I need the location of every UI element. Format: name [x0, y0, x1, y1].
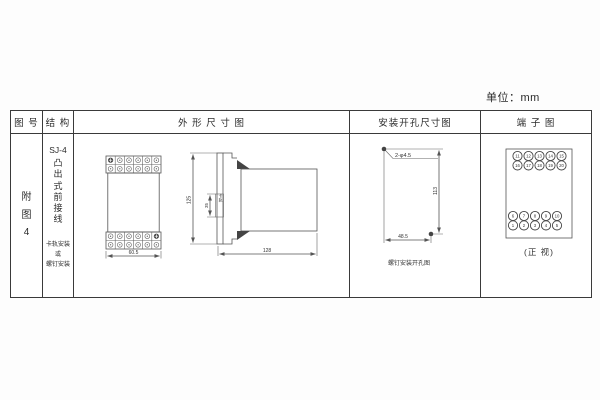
dim-front-width: 60.5	[129, 250, 139, 256]
model-name: SJ-4	[49, 145, 66, 155]
mount-note-line2: 或	[46, 250, 70, 260]
dim-depth: 128	[263, 248, 272, 254]
terminal-number: 3	[534, 223, 537, 228]
mount-note-line3: 螺钉安装	[46, 260, 70, 270]
terminal-number: 15	[559, 154, 564, 159]
terminal-number: 9	[545, 214, 548, 219]
dim-horizontal: 48.5	[398, 234, 408, 240]
front-view: 60.5	[106, 156, 161, 259]
terminal-number: 20	[559, 163, 564, 168]
structure-type: 凸出式前接线	[54, 158, 63, 226]
cell-structure: SJ-4 凸出式前接线 卡轨安装 或 螺钉安装	[43, 134, 74, 297]
terminal-number: 17	[526, 163, 531, 168]
terminal-number: 10	[555, 214, 560, 219]
dim-rail: 35	[204, 203, 209, 209]
cell-mounting-drawing: 2-φ4.5 113 48.5 螺钉安装开孔图	[350, 134, 481, 297]
header-mounting: 安装开孔尺寸图	[350, 111, 481, 134]
mounting-screw-icon	[154, 234, 159, 239]
mount-note: 卡轨安装 或 螺钉安装	[46, 240, 70, 271]
unit-label: 单位：mm	[486, 89, 540, 105]
dim-height: 125	[187, 196, 193, 205]
header-structure: 结 构	[43, 111, 74, 134]
cell-outline-drawing: 60.5 125 35	[74, 134, 350, 297]
terminal-number: 5	[556, 223, 559, 228]
mounting-screw-icon	[108, 158, 113, 163]
terminal-number: 12	[526, 154, 531, 159]
terminal-number: 13	[537, 154, 542, 159]
terminal-number: 14	[548, 154, 553, 159]
holes-label: 2-φ4.5	[395, 153, 411, 159]
spec-table: 图 号 结 构 外 形 尺 寸 图 安装开孔尺寸图 端 子 图 附图4 SJ-4…	[10, 110, 592, 298]
terminal-number: 16	[515, 163, 520, 168]
terminal-number: 6	[512, 214, 515, 219]
side-view: 125 35 卡轨 128	[187, 153, 318, 256]
terminal-diagram: 11 12 13 14 15 16 17 18 19 20 6 7 8 9 10…	[481, 134, 591, 296]
figure-number: 附图4	[22, 189, 32, 242]
terminal-number: 19	[548, 163, 553, 168]
terminal-number: 18	[537, 163, 542, 168]
cell-terminal-diagram: 11 12 13 14 15 16 17 18 19 20 6 7 8 9 10…	[481, 134, 591, 297]
mount-note-line1: 卡轨安装	[46, 240, 70, 250]
header-figure-no: 图 号	[11, 111, 43, 134]
terminal-number: 1	[512, 223, 515, 228]
hole-bottom-right	[429, 232, 434, 237]
terminal-number: 11	[515, 154, 520, 159]
terminal-number: 4	[545, 223, 548, 228]
rail-label: 卡轨	[218, 194, 223, 203]
terminal-number: 2	[523, 223, 526, 228]
header-terminal: 端 子 图	[481, 111, 591, 134]
drill-holes	[382, 147, 434, 237]
terminal-caption: (正 视)	[524, 247, 554, 257]
mounting-caption: 螺钉安装开孔图	[388, 259, 430, 267]
outline-dimension-drawing: 60.5 125 35	[74, 134, 350, 296]
header-outline: 外 形 尺 寸 图	[74, 111, 350, 134]
terminal-number: 8	[534, 214, 537, 219]
mounting-hole-drawing: 2-φ4.5 113 48.5 螺钉安装开孔图	[350, 134, 480, 296]
terminal-number: 7	[523, 214, 526, 219]
cell-figure-no: 附图4	[11, 134, 43, 297]
dim-vertical: 113	[433, 187, 439, 195]
